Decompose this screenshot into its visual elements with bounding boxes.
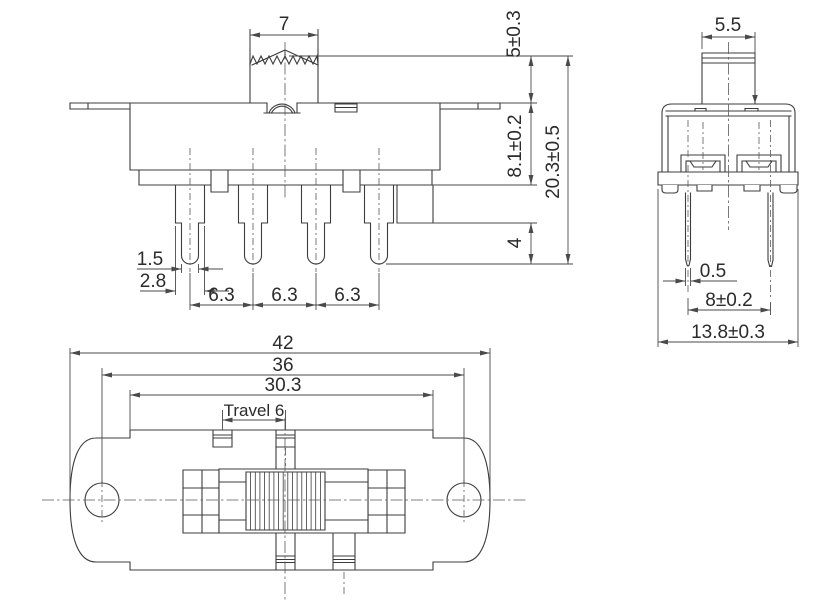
dim-top-overall-length: 42 [272,333,293,354]
dim-front-pitch-3: 6.3 [334,285,360,306]
dim-front-body-height: 8.1±0.2 [505,114,526,177]
side-view: 5.5 0.5 8±0.2 13.8±0.3 [658,15,798,347]
front-view: 7 5±0.3 8.1±0.2 4 20.3±0.5 1.5 2.8 [70,10,573,310]
dim-front-pitch-2: 6.3 [271,285,297,306]
technical-drawing: 7 5±0.3 8.1±0.2 4 20.3±0.5 1.5 2.8 [0,0,833,609]
dim-side-terminal-spacing: 8±0.2 [705,290,752,311]
dim-front-terminal-tip-width: 1.5 [137,249,163,270]
dim-front-knob-width: 7 [279,14,290,35]
dim-front-terminal-width: 2.8 [140,271,166,292]
front-view-dimensions: 7 5±0.3 8.1±0.2 4 20.3±0.5 1.5 2.8 [137,10,573,310]
dim-top-hole-spacing: 36 [272,355,293,376]
dim-front-terminal-tip-length: 4 [505,237,526,248]
dim-front-overall-height: 20.3±0.5 [543,125,564,199]
dim-side-body-depth: 13.8±0.3 [691,322,765,343]
side-view-dimensions: 5.5 0.5 8±0.2 13.8±0.3 [658,15,798,347]
dim-front-pitch-1: 6.3 [208,285,234,306]
dim-front-actuator-height: 5±0.3 [504,10,525,57]
surface-arrow [752,95,758,103]
top-view: 42 36 30.3 Travel 6 [42,333,527,600]
dim-side-terminal-thickness: 0.5 [700,261,726,282]
dim-top-cover-length: 30.3 [265,375,302,396]
dim-top-travel: Travel 6 [224,401,285,420]
dim-side-knob-width: 5.5 [715,15,741,36]
drawing-canvas: 7 5±0.3 8.1±0.2 4 20.3±0.5 1.5 2.8 [0,0,833,609]
